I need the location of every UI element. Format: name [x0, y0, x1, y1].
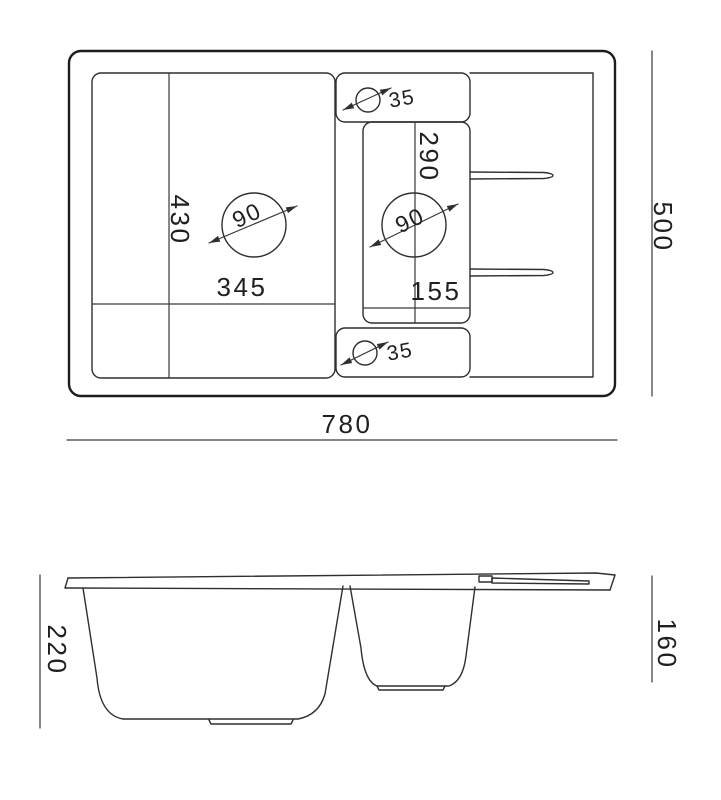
drainboard-groove-top: [470, 172, 553, 179]
rim-right-cap: [610, 575, 615, 590]
tap-hole-bottom-diameter-arrow: [341, 342, 388, 365]
rim-bottom-edge: [65, 588, 610, 590]
dim-label-small-bowl-width: 155: [411, 276, 462, 306]
sink-technical-drawing: 430 345 90 290 155 90 35 35 500 780 220: [0, 0, 721, 800]
small-bowl-profile: [350, 586, 475, 686]
drainboard-groove-bottom: [470, 269, 553, 276]
drainboard-surface-line: [492, 578, 589, 584]
dim-label-overall-depth: 500: [648, 202, 678, 253]
dim-label-small-bowl-height: 160: [652, 619, 682, 670]
plan-view: 430 345 90 290 155 90 35 35 500 780: [67, 51, 678, 440]
main-bowl-drain-foot: [209, 720, 293, 724]
dim-label-main-bowl-width: 345: [217, 272, 268, 302]
dim-label-main-drain: 90: [228, 197, 266, 233]
dim-label-small-drain: 90: [391, 202, 429, 238]
drainboard-outline: [470, 73, 593, 377]
dim-label-small-bowl-depth: 290: [414, 132, 444, 183]
main-bowl-outline: [92, 73, 335, 378]
rim-top-edge: [68, 573, 615, 578]
tap-hole-top: [356, 88, 380, 112]
dim-label-overall-width: 780: [322, 409, 373, 439]
drainboard-step: [479, 576, 492, 582]
sink-outer-outline: [69, 51, 615, 396]
dim-label-main-bowl-depth: 430: [165, 195, 195, 246]
dim-label-tap-hole-bottom: 35: [385, 338, 415, 365]
dim-label-tap-hole-top: 35: [387, 85, 417, 112]
main-bowl-profile: [83, 586, 343, 719]
side-view: 220 160: [40, 573, 682, 728]
rim-left-cap: [65, 578, 68, 588]
tap-hole-top-diameter-arrow: [343, 88, 391, 110]
dim-label-main-bowl-height: 220: [42, 625, 72, 676]
